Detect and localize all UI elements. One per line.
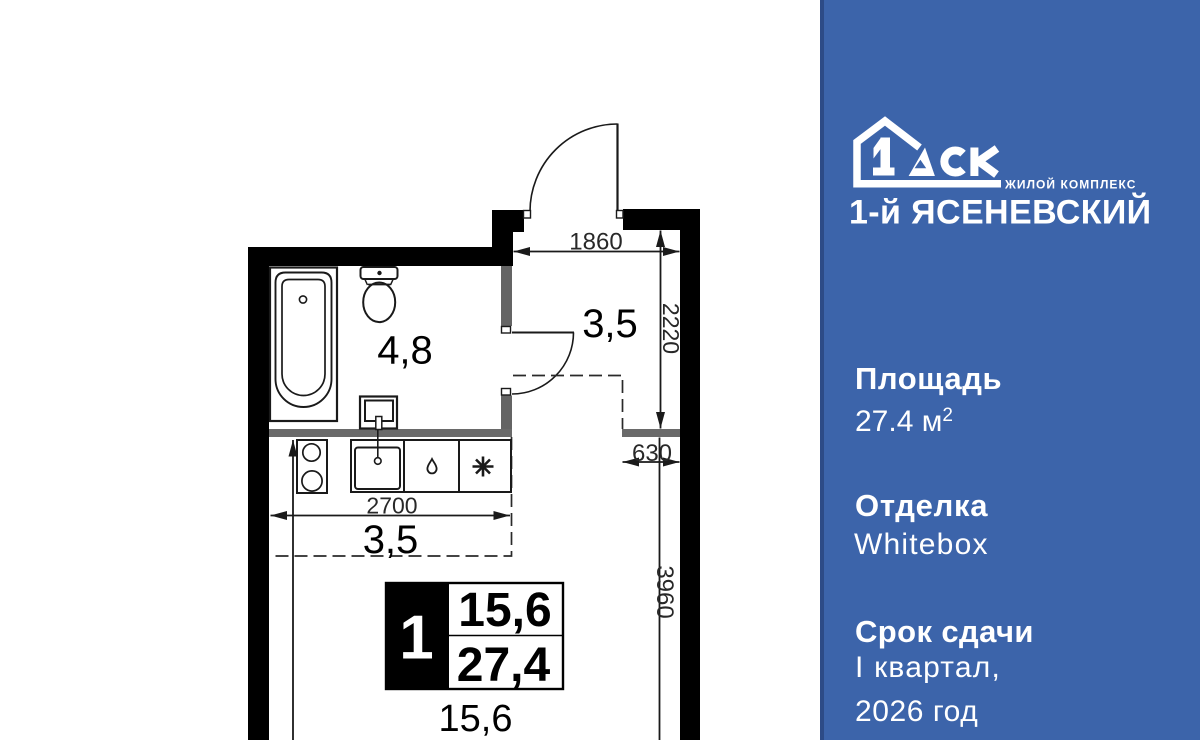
svg-text:630: 630 [632, 440, 672, 467]
svg-text:3,5: 3,5 [582, 302, 638, 346]
svg-text:3,5: 3,5 [363, 518, 419, 562]
svg-text:1860: 1860 [569, 229, 622, 256]
svg-text:15,6: 15,6 [439, 698, 513, 740]
svg-text:1-й ЯСЕНЕВСКИЙ: 1-й ЯСЕНЕВСКИЙ [849, 193, 1152, 232]
svg-text:15,6: 15,6 [458, 584, 551, 637]
svg-text:3960: 3960 [651, 565, 678, 618]
svg-text:2700: 2700 [366, 493, 417, 519]
svg-text:27,4: 27,4 [457, 639, 551, 692]
svg-text:2220: 2220 [658, 303, 684, 354]
svg-text:1: 1 [399, 604, 433, 673]
svg-text:4,8: 4,8 [377, 329, 433, 373]
svg-text:ЖИЛОЙ КОМПЛЕКС: ЖИЛОЙ КОМПЛЕКС [1004, 176, 1136, 191]
